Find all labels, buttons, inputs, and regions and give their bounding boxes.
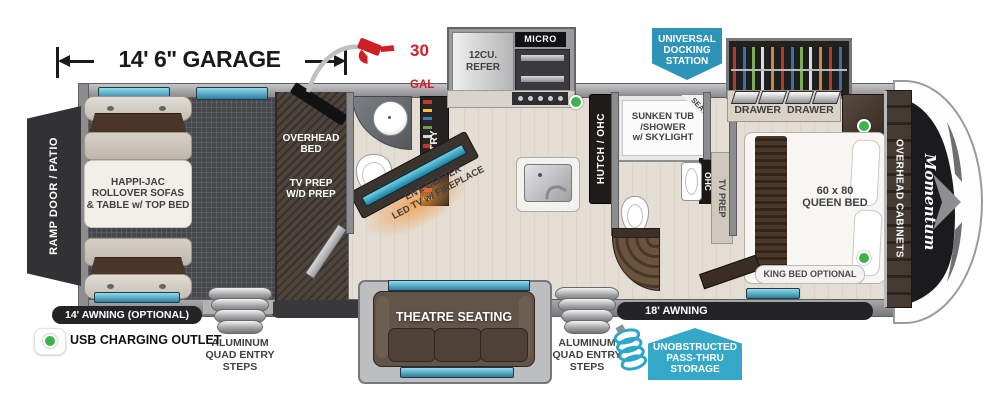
garage-dimension-label: 14' 6" GARAGE	[92, 47, 307, 73]
fuel-pump-icon	[288, 16, 408, 96]
hutch-label: HUTCH / OHC	[596, 113, 607, 184]
tub-shower: SUNKEN TUB /SHOWER w/ SKYLIGHT SEAT	[616, 94, 710, 162]
fuel-unit: GAL	[410, 79, 434, 91]
awning-14-label: 14' AWNING (OPTIONAL)	[52, 306, 202, 324]
pass-thru-badge: UNOBSTRUCTED PASS-THRU STORAGE	[648, 328, 742, 380]
kitchen-counter	[447, 90, 575, 108]
king-bed-option-label: KING BED OPTIONAL	[755, 265, 865, 284]
bath-left-wall	[611, 92, 619, 236]
kitchen-bumpout: 12CU. REFER MICRO	[447, 27, 576, 98]
charging-outlet-dot-kitchen	[569, 95, 583, 109]
garage-bottom-window	[94, 292, 180, 303]
tv-wd-prep-label: TV PREP W/D PREP	[278, 178, 344, 200]
theatre-sofa: THEATRE SEATING	[373, 291, 535, 367]
legend-swatch	[34, 328, 66, 355]
floorplan-canvas: RAMP DOOR / PATIO HAPPI-JAC ROLLOVER SOF…	[0, 0, 1000, 404]
garage-wall	[346, 92, 354, 234]
happijac-sofa-label: HAPPI-JAC ROLLOVER SOFAS & TABLE w/ TOP …	[84, 160, 192, 228]
legend-outlet-dot	[43, 334, 57, 348]
entry-steps-garage	[205, 287, 275, 333]
hall-tv-prep-label: TV PREP	[717, 179, 727, 218]
bedroom-window	[746, 288, 800, 299]
docking-station-badge: UNIVERSAL DOCKING STATION	[652, 28, 722, 80]
charging-outlet-dot-bedroom-bottom	[857, 251, 871, 265]
dimension-arrow-left	[58, 55, 70, 67]
bath-sink	[681, 162, 702, 201]
faucet-icon	[545, 182, 571, 202]
queen-bed-label: 60 x 80 QUEEN BED	[787, 185, 883, 210]
drawer-label-left: DRAWER	[734, 104, 781, 116]
theatre-slideout: THEATRE SEATING	[358, 280, 552, 384]
charging-outlet-dot-bedroom-top	[857, 119, 871, 133]
awning-18-label: 18' AWNING	[617, 302, 873, 320]
theatre-top-window	[388, 280, 530, 291]
overhead-cabinets: OVERHEAD CABINETS	[884, 90, 912, 308]
ramp-door-label: RAMP DOOR / PATIO	[48, 137, 60, 255]
oven	[515, 49, 570, 91]
kitchen-island	[516, 157, 580, 212]
bedroom-dresser: DRAWER DRAWER	[727, 90, 841, 122]
stove-cooktop	[512, 92, 568, 105]
fuel-capacity-label: 30 GAL	[410, 27, 434, 92]
momentum-logo-text: Momentum	[921, 153, 939, 251]
overhead-cabinets-label: OVERHEAD CABINETS	[893, 139, 904, 258]
overhead-bed-label: OVERHEAD BED	[278, 133, 344, 155]
bath-right-wall	[703, 92, 711, 160]
tub-label: SUNKEN TUB /SHOWER w/ SKYLIGHT	[622, 100, 704, 156]
bed-blanket	[755, 136, 787, 278]
ramp-door: RAMP DOOR / PATIO	[27, 106, 81, 286]
closet-rod	[731, 69, 847, 71]
coiled-hose-icon	[612, 322, 648, 374]
garage-window-2	[196, 87, 268, 100]
legend-label: USB CHARGING OUTLET	[70, 333, 221, 347]
sofa-top-seat	[84, 132, 192, 160]
drawer-label-right: DRAWER	[787, 104, 834, 116]
refrigerator: 12CU. REFER	[452, 32, 514, 91]
theatre-window	[400, 367, 514, 378]
theatre-label: THEATRE SEATING	[374, 310, 534, 324]
fuel-amount: 30	[410, 41, 429, 60]
microwave: MICRO	[515, 32, 566, 47]
